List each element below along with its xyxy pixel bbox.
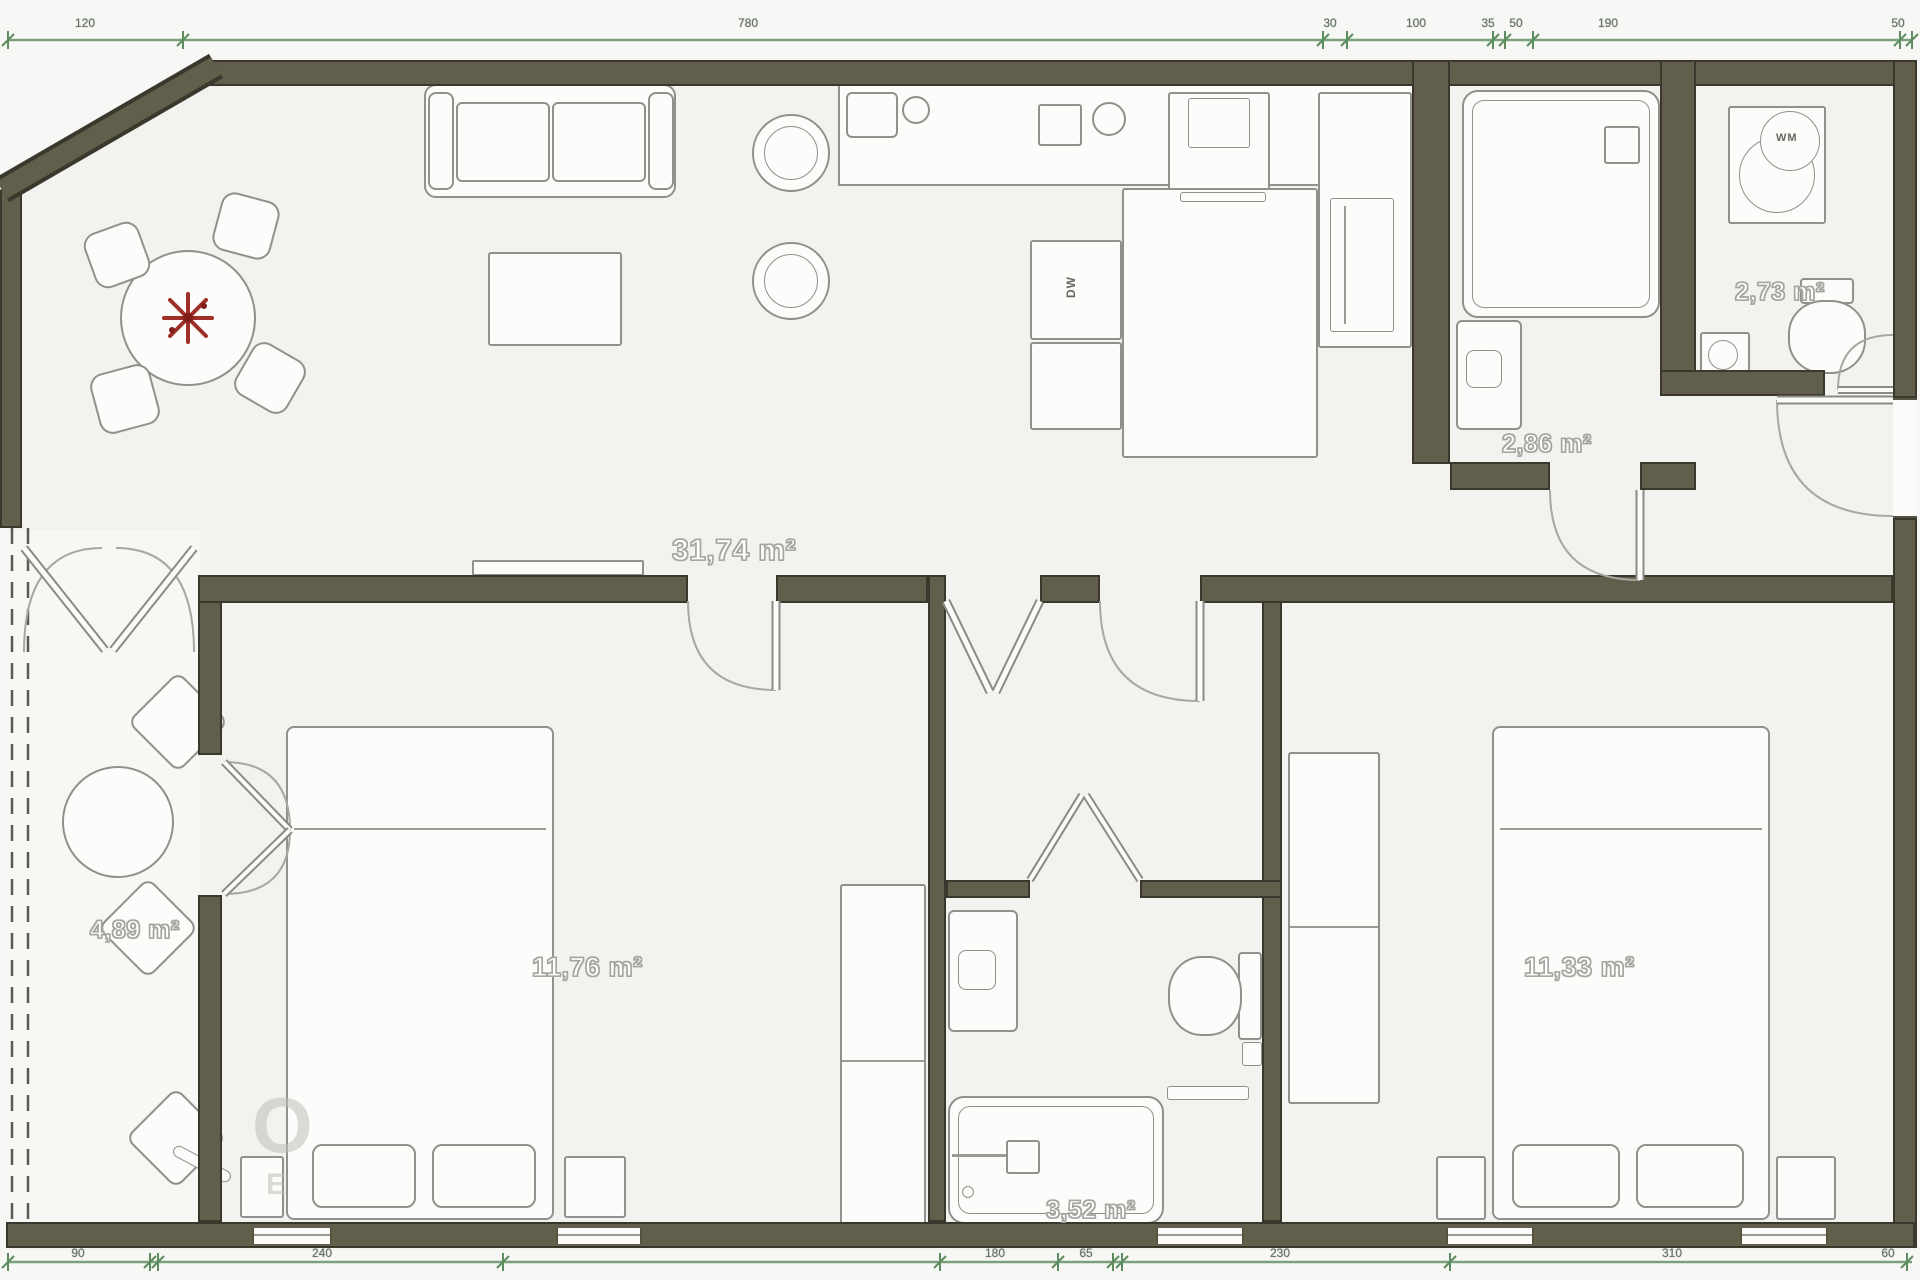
wall [946,880,1030,898]
washbasin [1466,350,1502,388]
wall [1200,575,1893,603]
wall [198,60,1915,86]
sofa-armrest [648,92,674,190]
wall [1640,462,1696,490]
window [1446,1228,1534,1244]
bed-fold-line [294,828,546,830]
wall [0,168,22,528]
wall [1893,60,1917,398]
pillow [432,1144,536,1208]
wall [776,575,928,603]
dimension-label: 190 [1598,16,1618,30]
kitchen-sink [846,92,898,138]
wall [1262,601,1282,1222]
window [556,1228,642,1244]
kitchen-cabinet [1030,342,1122,430]
wardrobe-line [1290,926,1378,928]
window [252,1228,332,1244]
dimension-label: 50 [1891,16,1904,30]
dimension-line-top [2,31,1918,49]
wardrobe [1288,752,1380,1104]
washbasin [958,950,996,990]
dimension-label: 35 [1481,16,1494,30]
dimension-label: 310 [1662,1246,1682,1260]
wall [198,895,222,1222]
dimension-label: 180 [985,1246,1005,1260]
dimension-label: 230 [1270,1246,1290,1260]
wardrobe-line [842,1060,924,1062]
area-label-bathroom: 2,86 m² [1502,430,1592,459]
wall [1660,370,1825,396]
sofa-cushion [552,102,646,182]
wall [198,575,688,603]
dimension-label: 65 [1079,1246,1092,1260]
wall [1450,462,1550,490]
kitchen-island [1122,188,1318,458]
nightstand [1776,1156,1836,1220]
small-appliance [1038,104,1082,146]
toilet-paper-holder [1242,1042,1262,1066]
bathtub-faucet [1604,126,1640,164]
island-shelf [1180,192,1266,202]
corner-sink-bowl [1708,340,1738,370]
wall [1412,60,1450,464]
dimension-line-bottom [2,1253,1913,1271]
dimension-label: 30 [1323,16,1336,30]
dimension-label: 50 [1509,16,1522,30]
nightstand [1436,1156,1486,1220]
balcony-table [62,766,174,878]
faucet [902,96,930,124]
dimension-label: 60 [1881,1246,1894,1260]
dimension-label: 100 [1406,16,1426,30]
wall [928,575,946,1222]
watermark-letter-e: E [266,1168,286,1202]
wardrobe [840,884,926,1240]
watermark-letter-o: O [252,1080,313,1171]
wall [1660,60,1696,396]
window [1156,1228,1244,1244]
sofa-armrest [428,92,454,190]
area-label-balcony: 4,89 m² [90,916,180,945]
dimension-label: 240 [312,1246,332,1260]
shower-sill [1167,1086,1249,1100]
toilet [1168,956,1242,1036]
pillow [1512,1144,1620,1208]
dimension-label: 780 [738,16,758,30]
sofa-cushion [456,102,550,182]
wall [1893,518,1917,1248]
bed-fold-line [1500,828,1762,830]
toilet [1788,300,1866,374]
washing-machine-label: WM [1776,132,1798,144]
dimension-label: 120 [75,16,95,30]
area-label-living: 31,74 m² [672,534,796,568]
coffee-table [488,252,622,346]
armchair-seat [764,254,818,308]
area-label-bedroom-1: 11,76 m² [532,952,643,983]
tv-bench [472,560,644,576]
area-label-bathroom-2: 3,52 m² [1046,1196,1136,1225]
dimension-label: 90 [71,1246,84,1260]
pot [1092,102,1126,136]
bathtub-faucet [1006,1140,1040,1174]
nightstand [564,1156,626,1218]
pillow [312,1144,416,1208]
entry-door-opening [1893,398,1917,518]
wall [198,601,222,755]
armchair-seat [764,126,818,180]
pillow [1636,1144,1744,1208]
drain [962,1186,974,1198]
wall [1040,575,1100,603]
bathtub-pipe [952,1154,1008,1157]
window [1740,1228,1828,1244]
area-label-wc: 2,73 m² [1735,278,1825,307]
dishwasher-label: DW [1064,276,1078,298]
fridge-line [1344,206,1346,324]
fridge [1330,198,1394,332]
floor-plan: 31,74 m² 2,86 m² 2,73 m² 11,76 m² 11,33 … [0,0,1920,1280]
area-label-bedroom-2: 11,33 m² [1524,952,1635,983]
oven [1188,98,1250,148]
wall [1140,880,1282,898]
